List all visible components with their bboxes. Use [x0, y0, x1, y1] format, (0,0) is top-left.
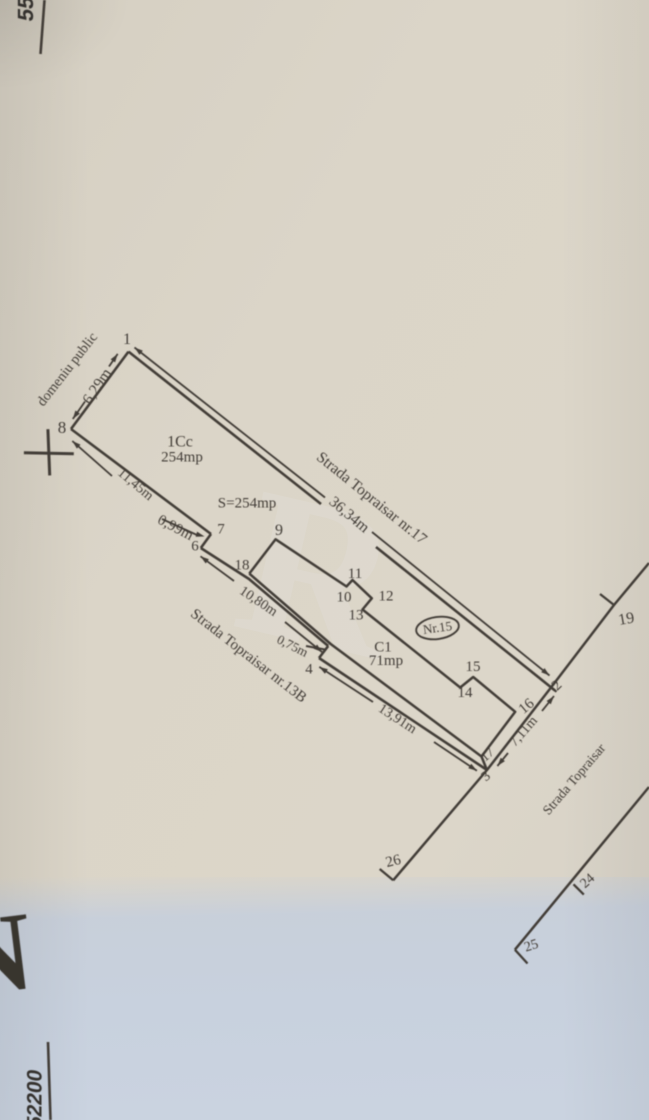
svg-text:9: 9 [275, 522, 283, 539]
svg-text:14: 14 [458, 685, 474, 701]
svg-text:S=254mp: S=254mp [218, 495, 276, 511]
svg-text:1Cc: 1Cc [167, 434, 193, 451]
svg-text:19: 19 [617, 609, 636, 629]
svg-text:15: 15 [466, 659, 481, 675]
svg-text:254mp: 254mp [161, 449, 203, 465]
svg-text:18: 18 [235, 557, 250, 573]
svg-text:1: 1 [123, 331, 131, 348]
svg-text:52200: 52200 [24, 1068, 47, 1120]
svg-text:4: 4 [305, 661, 313, 677]
svg-text:8: 8 [58, 418, 67, 437]
svg-text:6: 6 [191, 538, 199, 554]
svg-text:10: 10 [337, 589, 352, 605]
svg-text:13: 13 [349, 607, 364, 623]
svg-text:71mp: 71mp [369, 653, 403, 669]
svg-text:55: 55 [13, 0, 38, 23]
svg-text:12: 12 [379, 588, 394, 604]
svg-text:11: 11 [348, 566, 362, 582]
svg-text:7: 7 [217, 521, 225, 537]
